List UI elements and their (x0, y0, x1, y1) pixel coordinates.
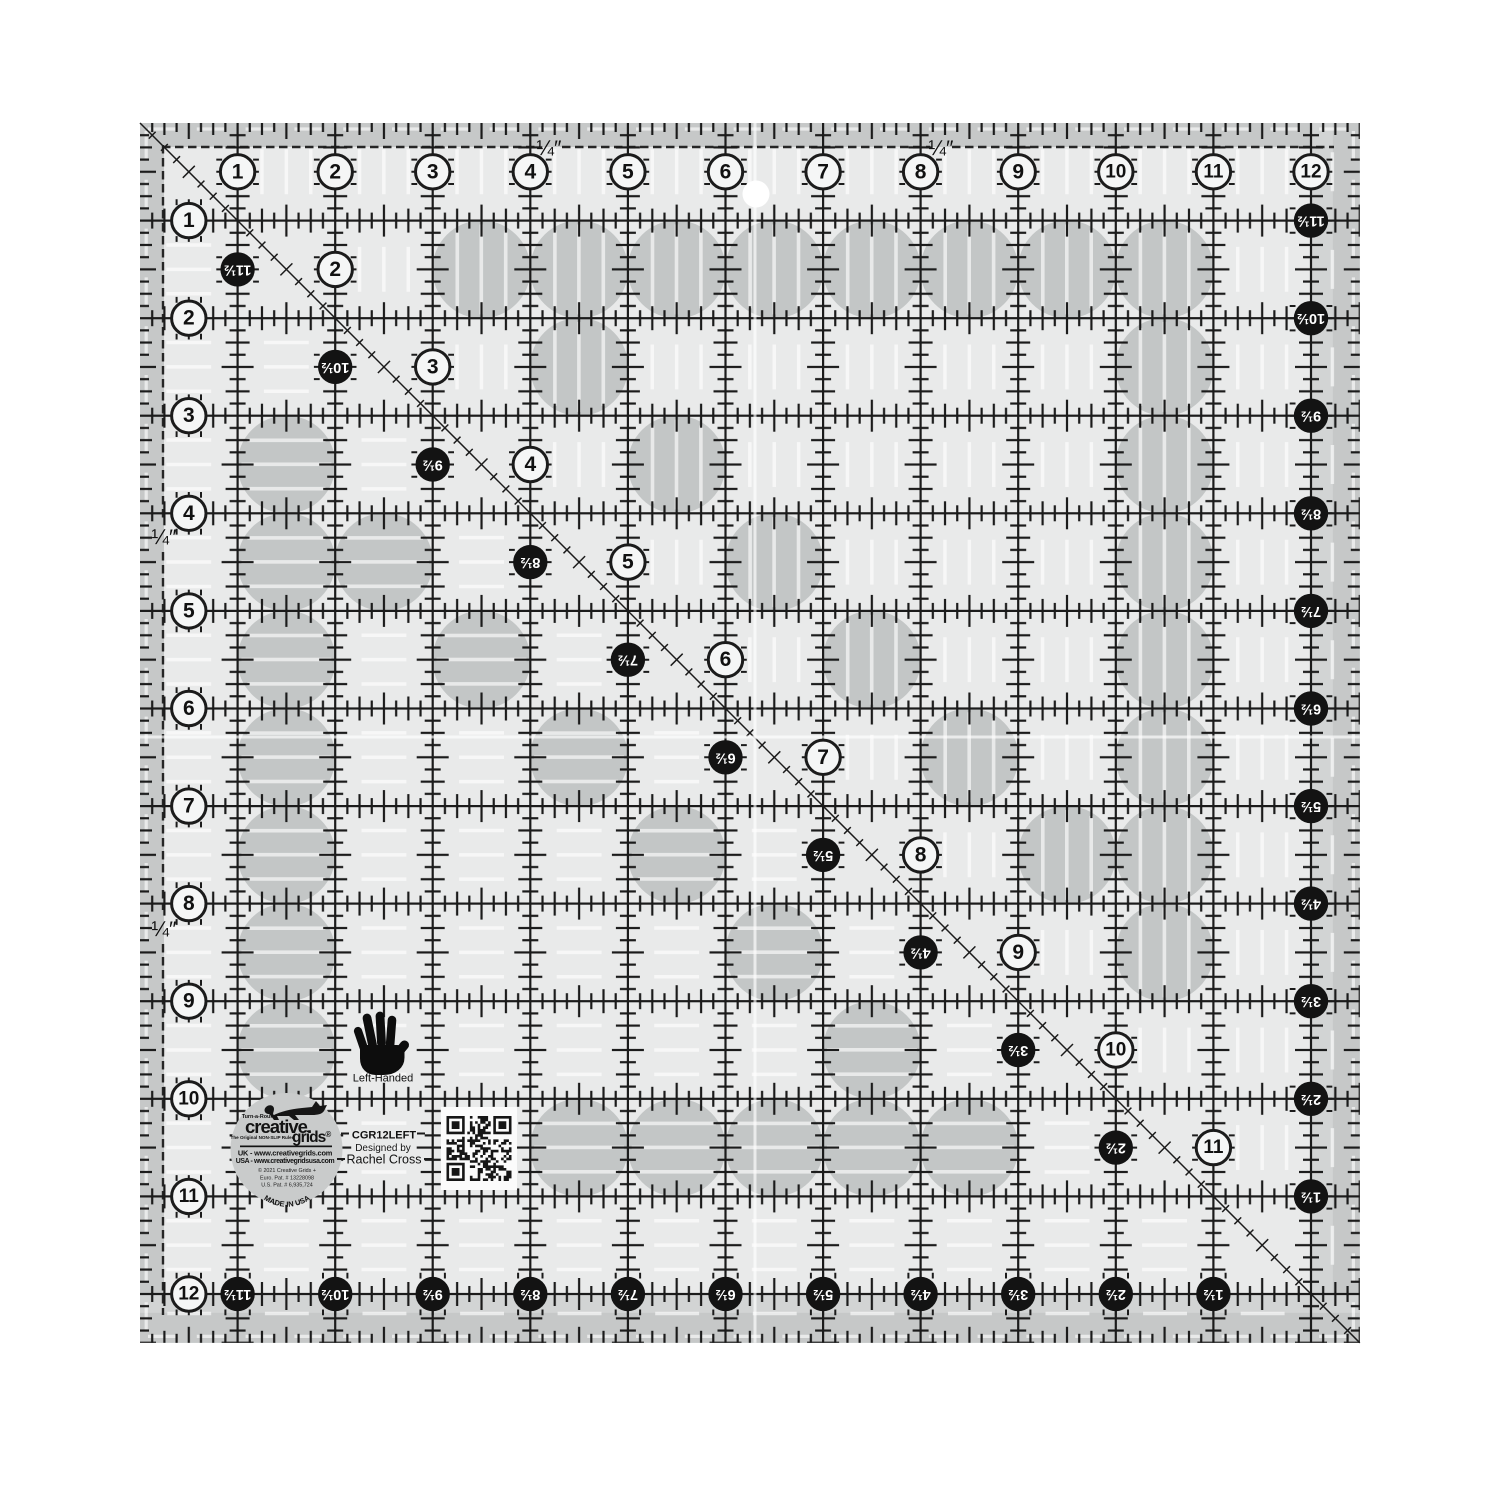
svg-text:9: 9 (1012, 941, 1024, 964)
svg-text:8½: 8½ (1301, 505, 1321, 521)
svg-text:4: 4 (524, 160, 536, 183)
svg-text:6½: 6½ (715, 1286, 735, 1302)
svg-text:Rachel Cross: Rachel Cross (346, 1153, 421, 1167)
svg-text:4½: 4½ (1301, 896, 1321, 912)
svg-text:6: 6 (720, 160, 732, 183)
svg-text:8: 8 (183, 892, 195, 915)
svg-text:3: 3 (427, 160, 439, 183)
svg-text:4: 4 (183, 502, 195, 525)
svg-text:1½: 1½ (1301, 1188, 1321, 1204)
svg-text:7: 7 (817, 160, 829, 183)
svg-text:© 2021 Creative Grids +: © 2021 Creative Grids + (258, 1167, 316, 1174)
svg-text:1½: 1½ (1203, 1286, 1223, 1302)
svg-text:7: 7 (183, 795, 195, 818)
svg-text:5½: 5½ (813, 1286, 833, 1302)
svg-text:11½: 11½ (224, 261, 251, 277)
svg-text:3: 3 (427, 355, 439, 378)
svg-text:Euro. Pat. # 13228098: Euro. Pat. # 13228098 (260, 1176, 314, 1182)
svg-text:12: 12 (1300, 161, 1321, 182)
svg-text:7½: 7½ (618, 1286, 638, 1302)
svg-text:4½: 4½ (911, 1286, 931, 1302)
svg-text:2½: 2½ (1301, 1091, 1321, 1107)
svg-text:The Original NON-SLIP Ruler: The Original NON-SLIP Ruler (231, 1135, 294, 1140)
svg-text:9½: 9½ (1301, 408, 1321, 424)
svg-text:6: 6 (183, 697, 195, 720)
svg-text:11½: 11½ (1297, 213, 1324, 229)
svg-text:7½: 7½ (618, 652, 638, 668)
svg-text:5: 5 (183, 599, 195, 622)
svg-text:10½: 10½ (1297, 310, 1325, 326)
svg-text:10: 10 (178, 1088, 199, 1109)
svg-text:6: 6 (720, 648, 732, 671)
svg-text:5: 5 (622, 551, 634, 574)
svg-text:8: 8 (915, 843, 927, 866)
svg-text:10: 10 (1105, 161, 1126, 182)
svg-text:7: 7 (817, 746, 829, 769)
svg-text:5: 5 (622, 160, 634, 183)
svg-text:6½: 6½ (1301, 701, 1321, 717)
svg-text:5½: 5½ (813, 847, 833, 863)
svg-text:10: 10 (1105, 1040, 1126, 1061)
svg-text:9: 9 (1012, 160, 1024, 183)
svg-text:8½: 8½ (520, 554, 540, 570)
svg-text:1: 1 (183, 209, 195, 232)
svg-text:3: 3 (183, 404, 195, 427)
svg-text:10½: 10½ (321, 359, 349, 375)
svg-text:8½: 8½ (520, 1286, 540, 1302)
svg-text:11: 11 (179, 1186, 200, 1207)
svg-text:9½: 9½ (423, 457, 443, 473)
svg-text:2½: 2½ (1106, 1140, 1126, 1156)
svg-text:CGR12LEFT: CGR12LEFT (352, 1130, 416, 1142)
svg-text:4½: 4½ (911, 944, 931, 960)
svg-text:7½: 7½ (1301, 603, 1321, 619)
svg-text:10½: 10½ (321, 1286, 349, 1302)
svg-text:6½: 6½ (715, 749, 735, 765)
svg-text:5½: 5½ (1301, 798, 1321, 814)
svg-text:1: 1 (232, 160, 244, 183)
svg-text:9½: 9½ (423, 1286, 443, 1302)
svg-text:3½: 3½ (1008, 1042, 1028, 1058)
svg-text:3½: 3½ (1301, 993, 1321, 1009)
svg-text:12: 12 (178, 1284, 199, 1305)
svg-text:3½: 3½ (1008, 1286, 1028, 1302)
svg-text:11: 11 (1203, 161, 1224, 182)
svg-text:2: 2 (329, 160, 341, 183)
svg-text:11: 11 (1203, 1137, 1224, 1158)
svg-text:4: 4 (524, 453, 536, 476)
svg-text:9: 9 (183, 990, 195, 1013)
svg-text:UK - www.creativegrids.com: UK - www.creativegrids.com (238, 1149, 333, 1158)
svg-text:8: 8 (915, 160, 927, 183)
svg-text:Left-Handed: Left-Handed (353, 1073, 414, 1085)
svg-text:U.S. Pat. # 6,935,724: U.S. Pat. # 6,935,724 (261, 1183, 313, 1189)
svg-text:2½: 2½ (1106, 1286, 1126, 1302)
svg-text:2: 2 (183, 307, 195, 330)
svg-text:11½: 11½ (224, 1286, 251, 1302)
svg-text:USA - www.creativegridsusa.com: USA - www.creativegridsusa.com (236, 1158, 335, 1165)
svg-text:2: 2 (329, 258, 341, 281)
